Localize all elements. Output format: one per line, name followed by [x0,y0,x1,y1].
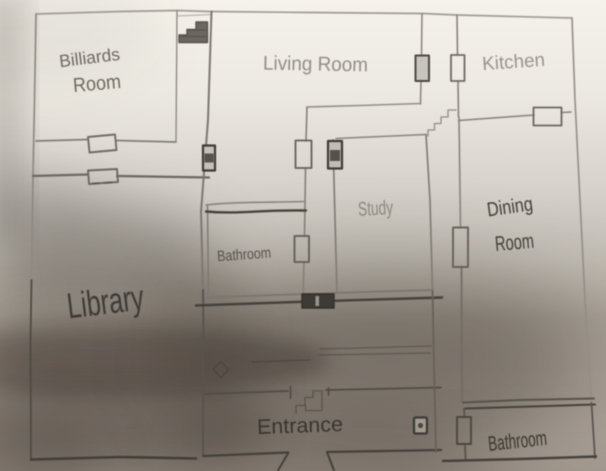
svg-text:Living Room: Living Room [263,53,368,77]
svg-text:Study: Study [357,197,393,221]
svg-text:Room: Room [72,71,122,97]
svg-text:Kitchen: Kitchen [481,50,545,75]
svg-text:Room: Room [494,230,535,256]
svg-text:Entrance: Entrance [257,413,344,439]
